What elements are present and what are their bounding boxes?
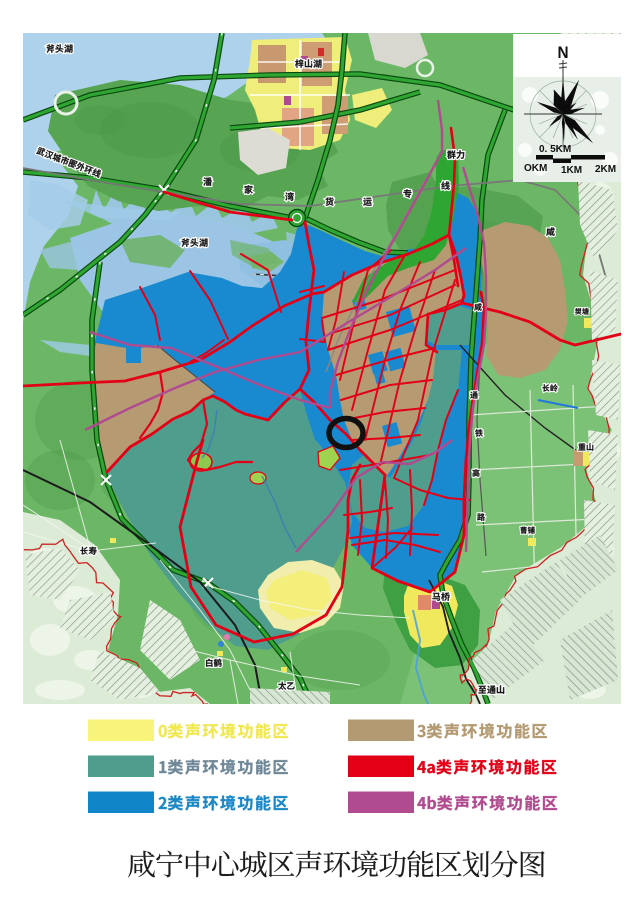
- svg-text:2KM: 2KM: [595, 164, 616, 175]
- svg-text:0. 5KM: 0. 5KM: [539, 144, 571, 155]
- svg-text:OKM: OKM: [524, 163, 547, 174]
- svg-text:N: N: [557, 43, 568, 62]
- svg-text:1KM: 1KM: [561, 165, 582, 176]
